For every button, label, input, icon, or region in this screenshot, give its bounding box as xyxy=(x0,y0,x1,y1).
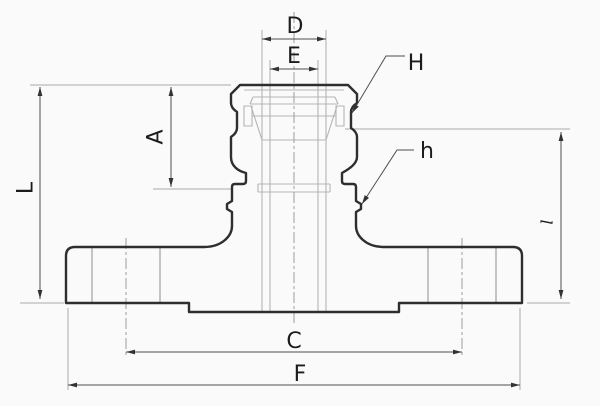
dim-label-c: C xyxy=(286,329,301,354)
dim-label-h-lower: h xyxy=(420,139,434,164)
arrowhead-d-left xyxy=(262,37,271,42)
arrowhead-leader-h-lower xyxy=(362,195,369,204)
dim-label-l-lower: l xyxy=(538,219,557,224)
dim-label-a: A xyxy=(144,129,169,144)
cam-tab-left xyxy=(244,106,252,126)
dim-label-f: F xyxy=(294,362,307,387)
coupler-taper-right xyxy=(326,106,337,140)
arrowhead-c-left xyxy=(126,350,135,355)
arrowhead-f-right xyxy=(511,383,520,388)
arrowhead-d-right xyxy=(317,37,326,42)
dimension-labels: D E H A L h l C F xyxy=(14,14,557,387)
arrowhead-e-right xyxy=(309,67,318,72)
dim-label-d: D xyxy=(287,14,304,39)
leader-h-upper xyxy=(352,56,405,113)
arrowhead-lowerl-bottom xyxy=(559,290,564,299)
coupler-edge-left xyxy=(250,97,253,104)
coupler-taper-left xyxy=(251,106,262,140)
flange-adapter-section-drawing: D E H A L h l C F xyxy=(0,0,600,406)
arrowhead-l-bottom xyxy=(38,290,43,299)
dim-label-h-upper: H xyxy=(408,51,425,76)
dim-label-e: E xyxy=(287,44,301,69)
leader-h-lower xyxy=(362,150,414,204)
arrowhead-a-bottom xyxy=(169,178,174,187)
arrowhead-a-top xyxy=(169,87,174,96)
arrowhead-e-left xyxy=(270,67,279,72)
dim-label-l-upper: L xyxy=(14,181,39,194)
cam-tab-right xyxy=(336,106,344,126)
coupler-edge-right xyxy=(335,97,338,104)
arrowhead-f-left xyxy=(68,383,77,388)
arrowhead-l-top xyxy=(38,87,43,96)
drawing-canvas: D E H A L h l C F xyxy=(0,0,600,406)
arrowhead-lowerl-top xyxy=(559,132,564,141)
arrowhead-c-right xyxy=(453,350,462,355)
